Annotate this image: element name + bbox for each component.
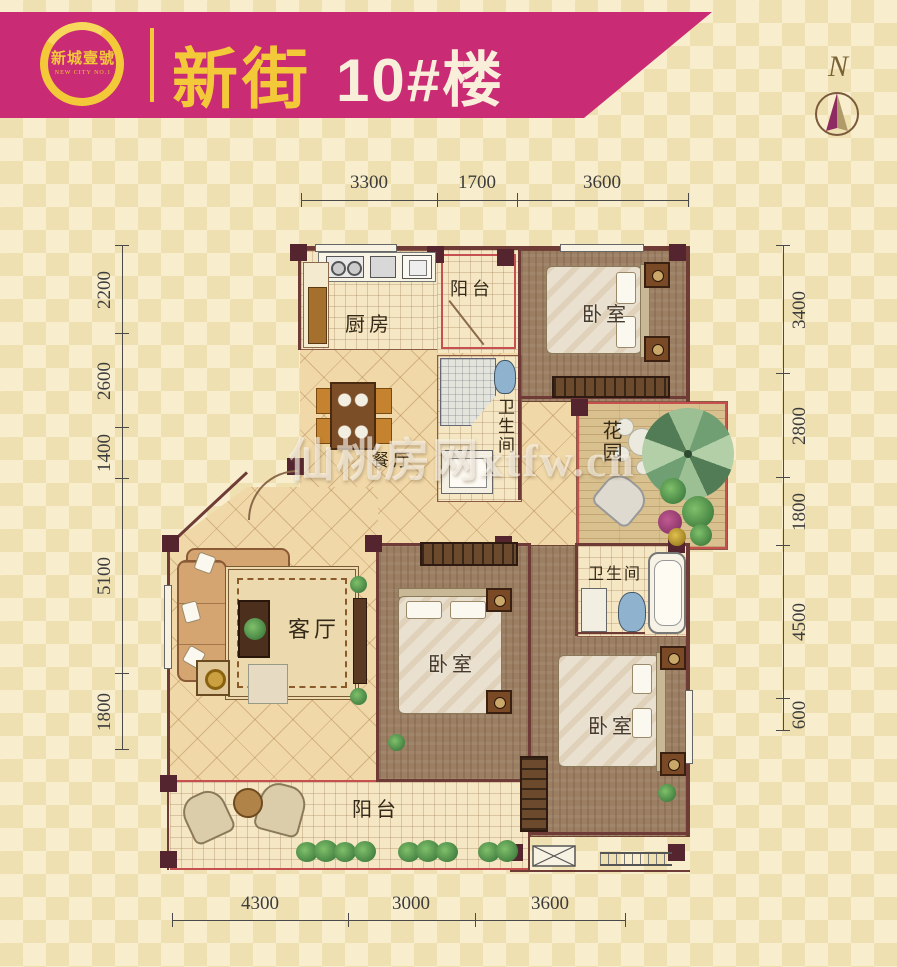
dim-top-1: 3300	[339, 172, 399, 194]
bush	[334, 842, 356, 862]
logo-name: 新城壹號	[51, 51, 115, 67]
dim-left-2: 2600	[94, 351, 116, 411]
compass-north-label: N	[818, 50, 858, 84]
label-balcony-top: 阳台	[450, 275, 494, 301]
bathtub-inner	[654, 560, 682, 626]
tv-plant	[350, 576, 367, 593]
dim-line-bottom	[172, 920, 625, 921]
bush	[496, 840, 518, 862]
side-table	[248, 664, 288, 704]
nightstand	[486, 588, 512, 612]
balcony-top-redframe	[441, 254, 516, 349]
wall-post	[160, 851, 177, 868]
kitchen-appliance	[370, 256, 396, 278]
dim-tick	[776, 545, 790, 546]
dim-bottom-3: 3600	[520, 893, 580, 915]
dim-right-4: 4500	[789, 592, 811, 652]
page-title-cn: 新街	[172, 26, 312, 122]
dim-line-right	[783, 245, 784, 730]
dim-left-3: 1400	[94, 423, 116, 483]
wall-post	[497, 249, 514, 266]
tv-plant	[350, 688, 367, 705]
plant	[388, 734, 405, 751]
dim-tick	[688, 193, 689, 207]
dim-left-1: 2200	[94, 260, 116, 320]
dim-top-2: 1700	[447, 172, 507, 194]
dim-left-5: 1800	[94, 682, 116, 742]
pillow	[632, 664, 652, 694]
pillow	[450, 601, 486, 619]
tv-cabinet	[353, 598, 367, 684]
window	[164, 585, 172, 669]
banner-divider	[150, 28, 154, 102]
dim-right-1: 3400	[789, 280, 811, 340]
garden-plant	[690, 524, 712, 546]
dim-tick	[115, 427, 129, 428]
wall-post	[669, 244, 686, 261]
dim-tick	[776, 477, 790, 478]
dim-tick	[625, 913, 626, 927]
dim-tick	[776, 698, 790, 699]
window	[685, 690, 693, 764]
pillow	[406, 601, 442, 619]
label-kitchen: 厨房	[345, 308, 393, 337]
fridge	[308, 287, 327, 344]
label-bath2: 卫生间	[588, 560, 642, 584]
ac-platform	[600, 852, 672, 866]
wardrobe	[420, 542, 518, 566]
floorplan-flyer: 新城壹號 NEW CITY NO.1 新街 10#楼 N 3300 1700 3…	[0, 0, 897, 967]
dim-bottom-2: 3000	[381, 893, 441, 915]
dim-left-4: 5100	[94, 546, 116, 606]
page-title-building: 10#楼	[336, 32, 504, 119]
dim-tick	[115, 245, 129, 246]
window	[560, 244, 644, 252]
dim-tick	[437, 193, 438, 207]
ac-unit-icon	[532, 845, 576, 867]
label-bedroom-mid: 卧室	[428, 648, 476, 677]
header-banner: 新城壹號 NEW CITY NO.1 新街 10#楼	[0, 12, 712, 118]
dim-tick	[172, 913, 173, 927]
sink-basin	[409, 260, 427, 276]
bush	[354, 841, 376, 862]
dim-bottom-1: 4300	[230, 893, 290, 915]
wall	[376, 543, 379, 782]
wall-post	[365, 535, 382, 552]
stool-ring	[205, 669, 226, 690]
garden-plant	[668, 528, 686, 546]
logo-text: 新城壹號 NEW CITY NO.1	[28, 52, 138, 76]
label-bedroom-top: 卧室	[582, 298, 630, 327]
dim-tick	[115, 749, 129, 750]
wall	[575, 632, 645, 634]
dim-tick	[776, 730, 790, 731]
dim-right-5: 600	[789, 685, 811, 745]
label-bedroom-bottom: 卧室	[588, 710, 636, 739]
wall-post	[160, 775, 177, 792]
dim-tick	[115, 333, 129, 334]
bush	[436, 842, 458, 862]
label-balcony-bottom: 阳台	[352, 793, 400, 822]
dim-top-3: 3600	[572, 172, 632, 194]
toilet	[618, 592, 646, 632]
balcony-table	[233, 788, 263, 818]
wall	[298, 246, 301, 350]
stove-burner	[331, 261, 346, 276]
nightstand	[660, 646, 686, 670]
wall-post	[290, 244, 307, 261]
stove-burner	[347, 261, 362, 276]
nightstand	[660, 752, 686, 776]
washbasin	[581, 588, 607, 632]
logo-subtitle: NEW CITY NO.1	[28, 70, 138, 76]
window	[315, 244, 397, 252]
wall	[686, 246, 690, 402]
dim-tick	[348, 913, 349, 927]
dim-right-2: 2800	[789, 396, 811, 456]
table-plant	[244, 618, 266, 640]
dim-tick	[776, 245, 790, 246]
wall	[376, 779, 531, 782]
nightstand	[486, 690, 512, 714]
toilet	[494, 360, 516, 394]
plant	[658, 784, 676, 802]
dim-tick	[115, 673, 129, 674]
label-living: 客厅	[288, 612, 340, 644]
dim-right-3: 1800	[789, 482, 811, 542]
site-watermark: 仙桃房网xtfw.cn	[288, 424, 636, 490]
dim-tick	[301, 193, 302, 207]
wall	[510, 870, 690, 872]
wall-post	[571, 399, 588, 416]
wall-post	[162, 535, 179, 552]
wardrobe	[520, 756, 548, 832]
wardrobe	[552, 376, 670, 398]
dim-tick	[115, 478, 129, 479]
compass-icon	[813, 90, 861, 138]
dim-tick	[517, 193, 518, 207]
nightstand	[644, 262, 670, 288]
dim-tick	[475, 913, 476, 927]
dim-tick	[776, 373, 790, 374]
garden-plant	[660, 478, 686, 504]
wall	[530, 832, 688, 835]
wall	[575, 543, 578, 636]
umbrella-pole	[684, 450, 692, 458]
dim-line-top	[301, 200, 688, 201]
nightstand	[644, 336, 670, 362]
